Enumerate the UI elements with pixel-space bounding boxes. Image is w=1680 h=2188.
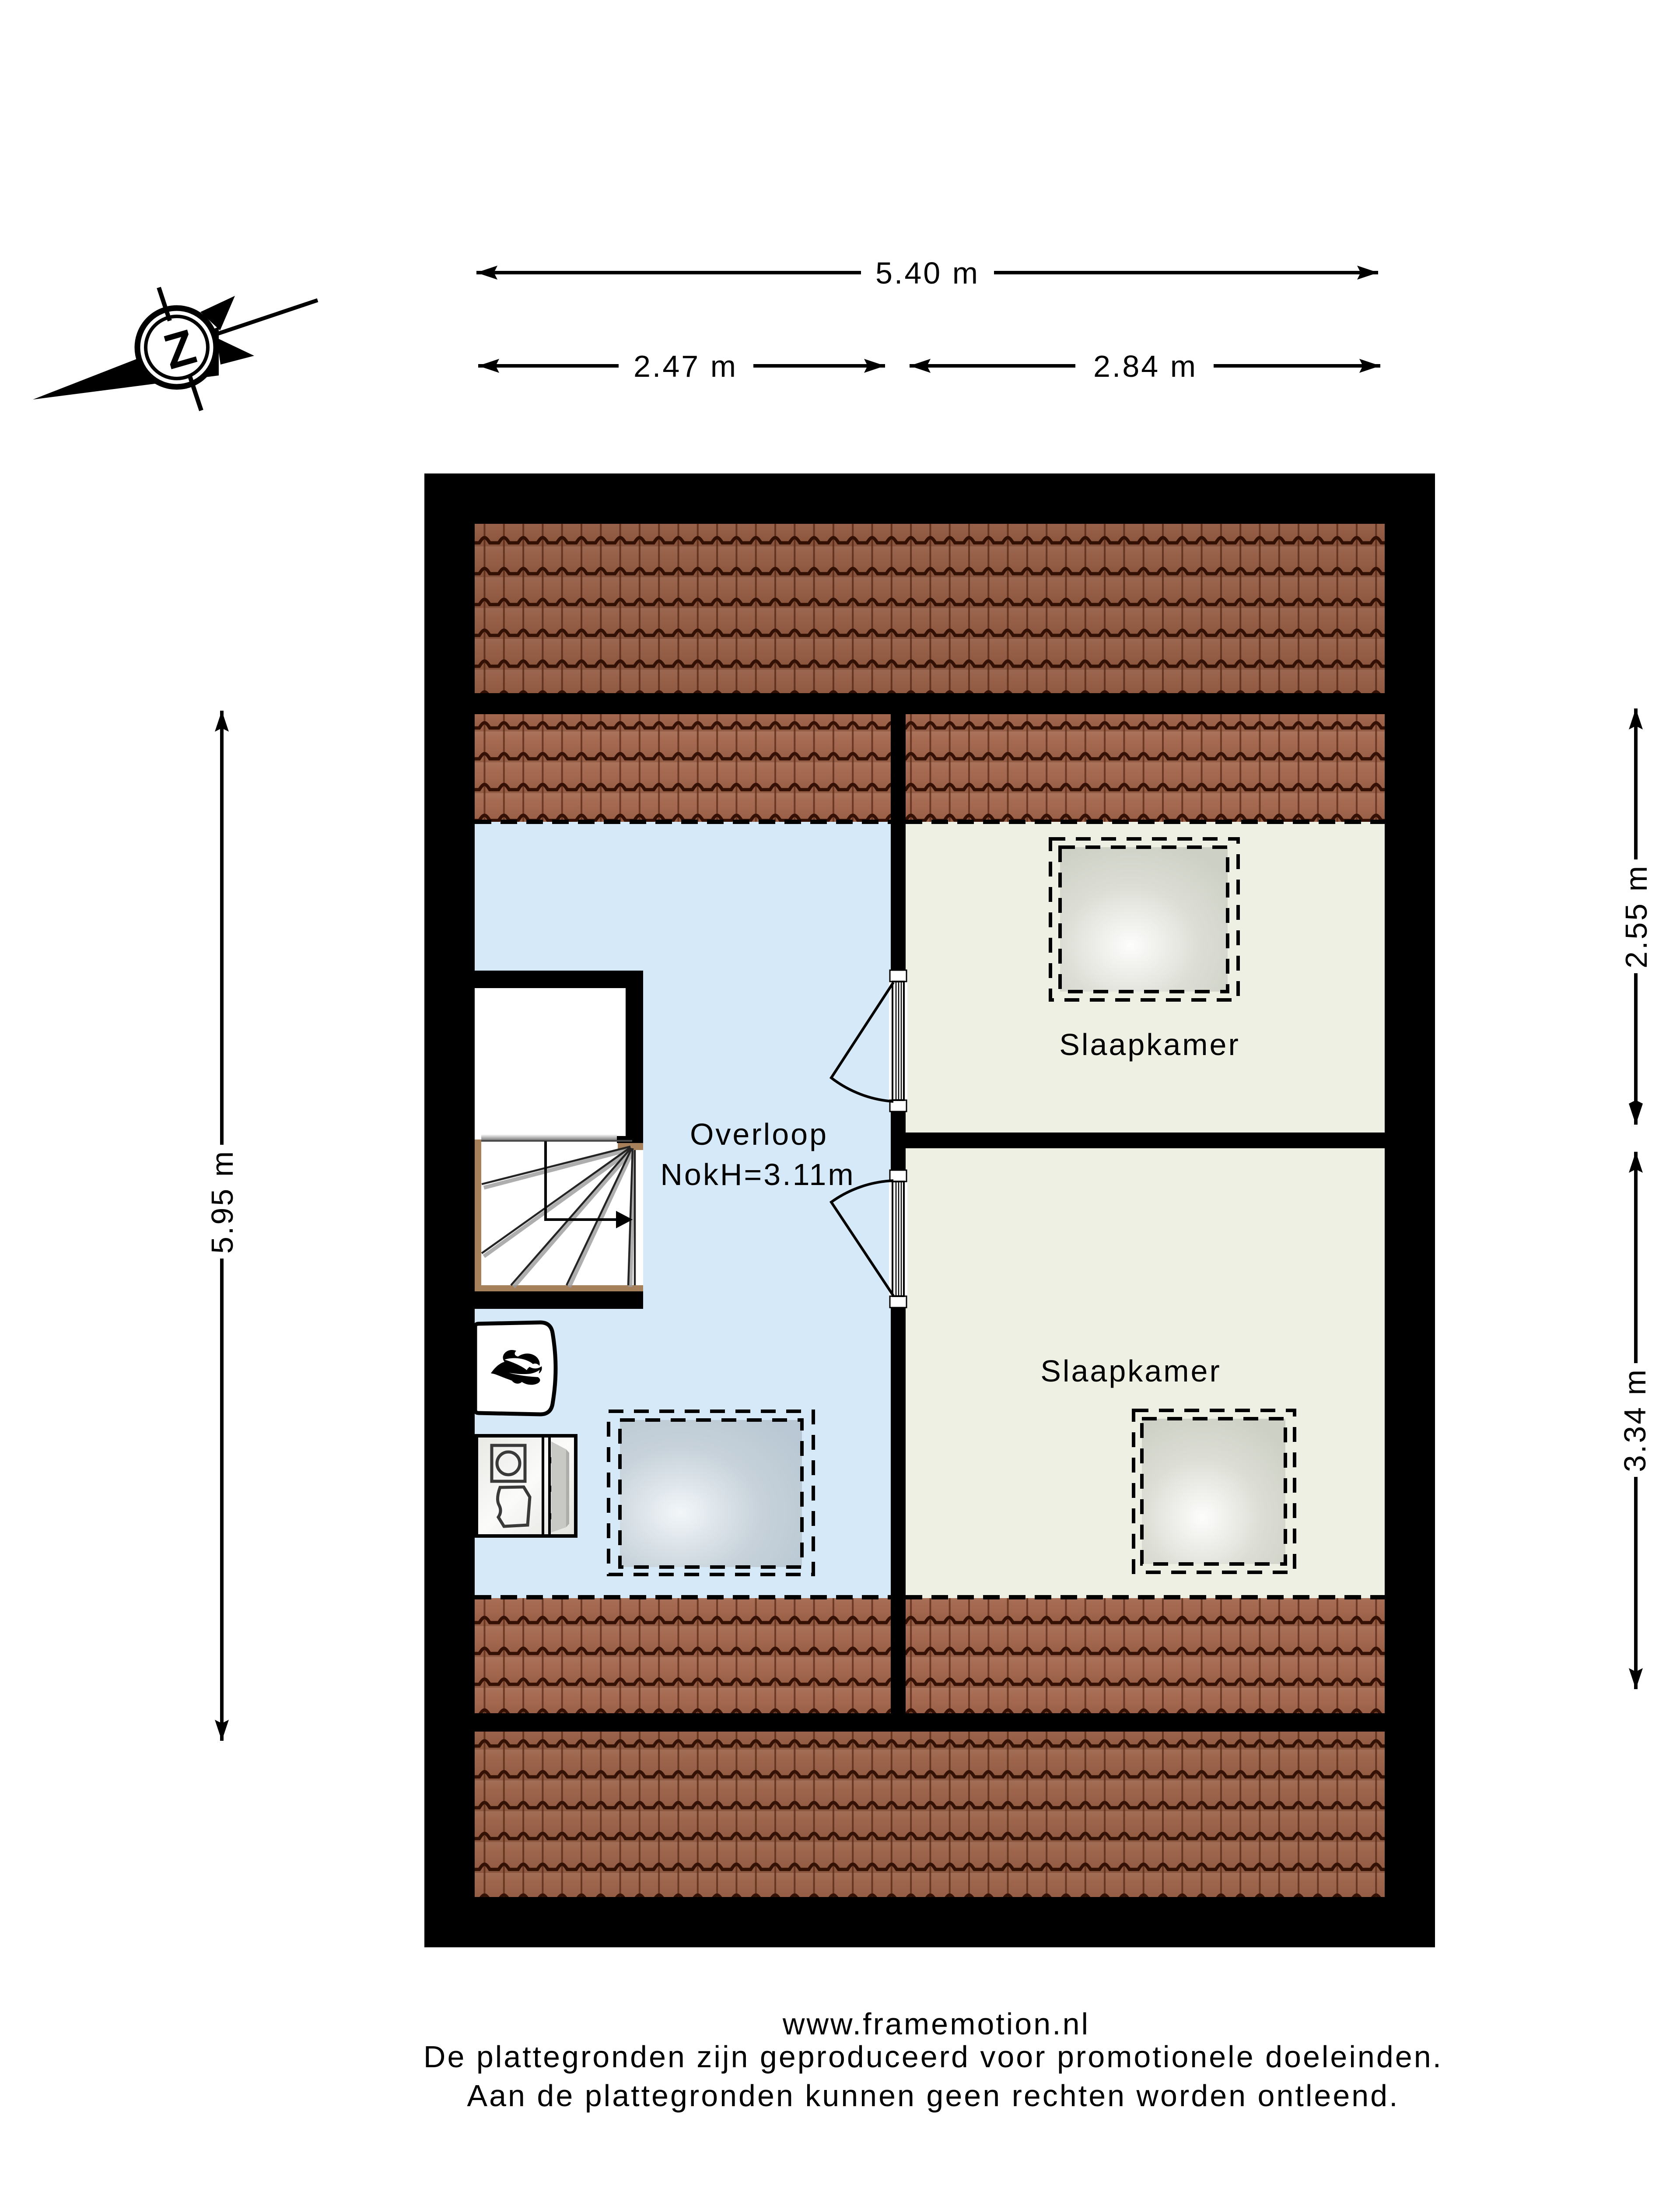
svg-text:Slaapkamer: Slaapkamer xyxy=(1040,1354,1221,1388)
svg-text:2.55 m: 2.55 m xyxy=(1619,864,1653,968)
svg-text:Slaapkamer: Slaapkamer xyxy=(1059,1027,1240,1062)
svg-text:NokH=3.11m: NokH=3.11m xyxy=(660,1157,855,1192)
svg-text:De plattegronden zijn geproduc: De plattegronden zijn geproduceerd voor … xyxy=(423,2040,1443,2074)
svg-text:5.40 m: 5.40 m xyxy=(875,256,980,290)
svg-text:3.34 m: 3.34 m xyxy=(1618,1368,1652,1472)
svg-text:2.84 m: 2.84 m xyxy=(1093,349,1197,383)
svg-text:2.47 m: 2.47 m xyxy=(633,349,738,383)
svg-text:Overloop: Overloop xyxy=(690,1117,828,1151)
svg-text:www.framemotion.nl: www.framemotion.nl xyxy=(782,2007,1090,2041)
svg-text:Aan de plattegronden kunnen ge: Aan de plattegronden kunnen geen rechten… xyxy=(467,2079,1399,2113)
svg-text:5.95 m: 5.95 m xyxy=(205,1150,239,1254)
